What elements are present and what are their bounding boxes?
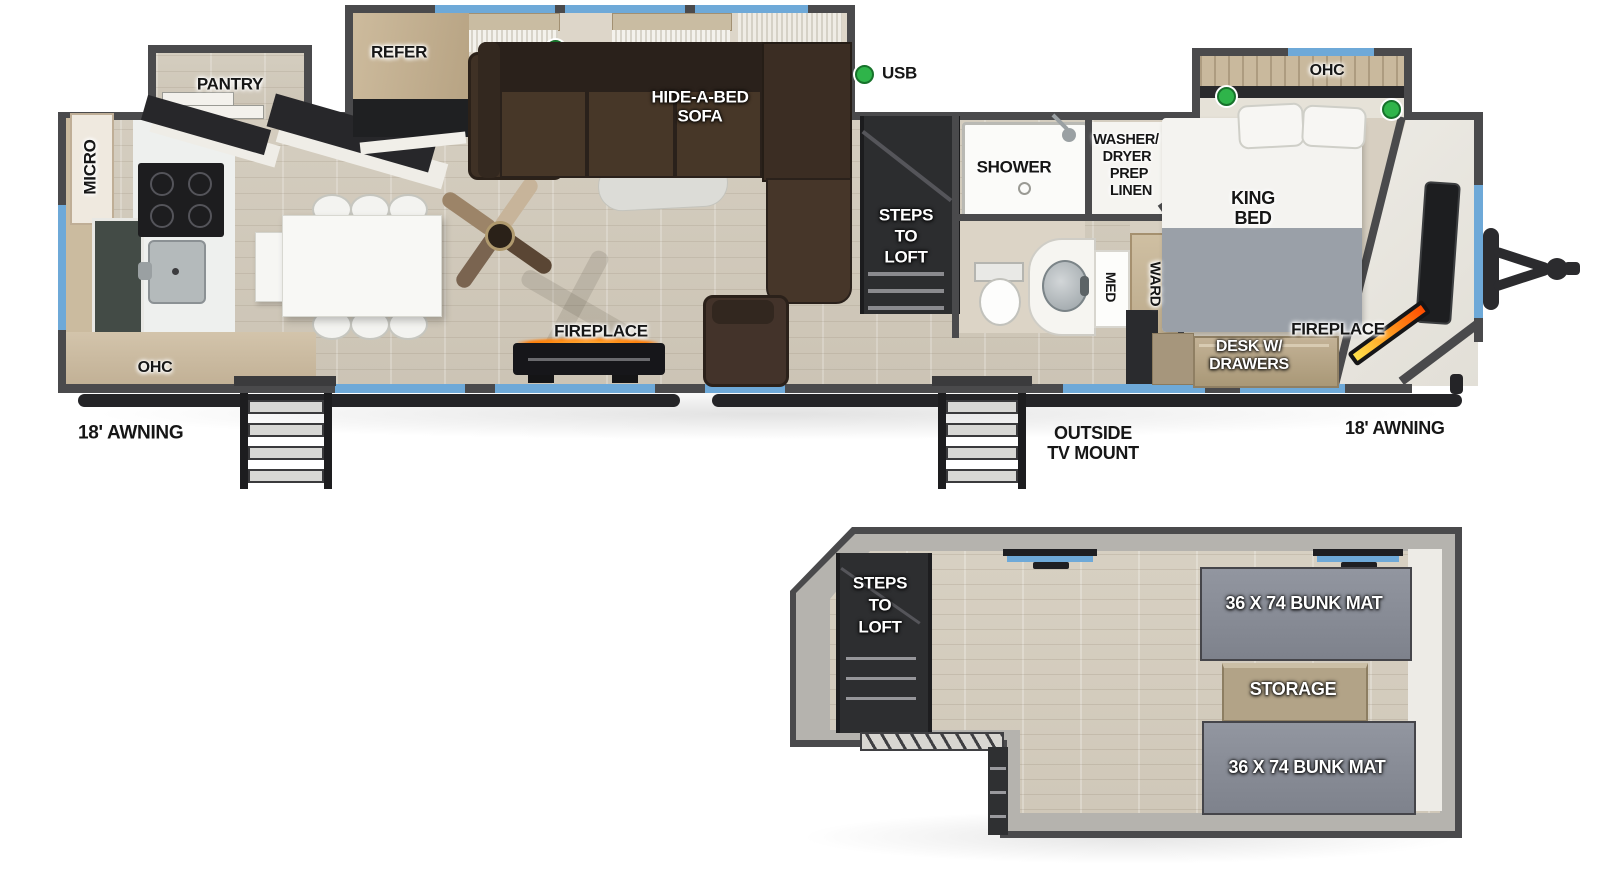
refrigerator-open-front [353, 99, 469, 137]
toilet-bowl [979, 278, 1021, 326]
top-wall-seg4 [1404, 112, 1480, 120]
tv-mount-label-line2: TV MOUNT [1047, 443, 1139, 463]
main-stairs-tread-2 [868, 289, 944, 293]
ceiling-fan-hub [485, 221, 515, 251]
med-label: MED [1102, 272, 1118, 302]
usb-indicator-bed-right [1382, 100, 1401, 119]
entry-steps-1 [240, 393, 332, 489]
loft-railing [860, 732, 1004, 751]
window-cornice-2 [612, 13, 732, 31]
steps1-tread-4 [248, 469, 324, 483]
sink-drain [172, 268, 179, 275]
side-rail-tread-3 [990, 815, 1006, 818]
living-slide-window-1 [435, 5, 555, 13]
bottom-window-1 [335, 384, 465, 393]
bath-wall-under-shower [955, 214, 1088, 221]
fireplace-bedroom-label: FIREPLACE [1291, 319, 1385, 338]
shower-label: SHOWER [977, 157, 1052, 176]
loft-bunk-bottom-label: 36 X 74 BUNK MAT [1229, 757, 1386, 777]
main-stairs-tread-3 [868, 306, 944, 310]
loft-stairs-tread-1 [846, 657, 916, 660]
entry-steps-2 [938, 393, 1026, 489]
awning-bar-left [78, 394, 680, 407]
sofa-chaise [766, 178, 852, 304]
desk-side-cabinet [1152, 333, 1194, 385]
awning-bar-right [712, 394, 1462, 407]
side-rail-tread-2 [990, 791, 1006, 794]
kitchen-island-table [282, 215, 442, 317]
shower-head [1062, 128, 1076, 142]
hide-a-bed-label-line1: HIDE-A-BED [651, 87, 748, 106]
king-bed-label-line1: KING [1231, 188, 1275, 208]
loft-steps-label-line3: LOFT [858, 617, 901, 636]
steps2-tread-2 [946, 423, 1018, 437]
steps1-tread-2 [248, 423, 324, 437]
loft-stairs-tread-3 [846, 697, 916, 700]
living-slide-window-3 [695, 5, 808, 13]
bath-wall-left [952, 116, 959, 338]
main-steps-label-line1: STEPS [879, 205, 933, 224]
washer-label-line4: LINEN [1110, 183, 1152, 199]
stove-burner-1 [150, 172, 174, 196]
tv-mount-label-line1: OUTSIDE [1054, 423, 1132, 443]
bottom-window-2 [495, 384, 655, 393]
loft-window-2-frame [1313, 549, 1403, 556]
loft-window-1-handle [1033, 562, 1069, 569]
pantry-label: PANTRY [197, 74, 263, 93]
washer-closet-wall-bottom [1085, 214, 1171, 221]
loft-steps-label-line1: STEPS [853, 573, 907, 592]
fireplace-console-line [528, 358, 650, 361]
steps1-tread-3 [248, 446, 324, 460]
sink-faucet [138, 262, 152, 280]
hitch-stub [1564, 262, 1580, 275]
sofa-left-arm [478, 42, 500, 178]
micro-label: MICRO [80, 139, 99, 194]
living-slide-wall-left [345, 5, 353, 120]
stove-burner-4 [188, 204, 212, 228]
desk-label-line1: DESK W/ [1216, 338, 1282, 356]
pantry-wall-top [148, 45, 312, 53]
awning-left-label: 18' AWNING [78, 422, 183, 443]
side-rail-tread-1 [990, 767, 1006, 770]
steps1-rail-left [240, 393, 248, 489]
vanity-faucet [1080, 276, 1089, 296]
bed-pillow-2 [1301, 104, 1367, 149]
steps2-rail-left [938, 393, 946, 489]
kitchen-ohc-label: OHC [138, 359, 173, 377]
main-stairs-tread-1 [868, 272, 944, 276]
bedroom-ohc-label: OHC [1310, 62, 1345, 80]
floorplan-canvas: MICRO PANTRY REFER OHC HIDE-A-BED SOFA F… [0, 0, 1600, 882]
loft-stairs-tread-2 [846, 677, 916, 680]
bedroom-slide-window [1288, 48, 1374, 56]
desk-label-line2: DRAWERS [1209, 356, 1289, 374]
right-wall-window [1474, 185, 1483, 318]
ward-label: WARD [1146, 262, 1163, 307]
fireplace-console-foot-2 [612, 375, 638, 383]
loft-plan: STEPS TO LOFT 36 X 74 BUNK MAT STORAGE 3… [790, 525, 1462, 840]
living-slide-window-2 [565, 5, 685, 13]
sofa-corner-seat [762, 42, 852, 182]
steps2-rail-right [1018, 393, 1026, 489]
stove-burner-2 [188, 172, 212, 196]
main-steps-label-line2: TO [895, 226, 918, 245]
hide-a-bed-label-line2: SOFA [677, 106, 722, 125]
loft-window-1-frame [1003, 549, 1097, 556]
usb-label: USB [882, 63, 917, 82]
usb-indicator-bed-left [1217, 87, 1236, 106]
stove [138, 163, 224, 237]
washer-label-line2: DRYER [1103, 149, 1152, 165]
tall-cabinet [92, 218, 144, 342]
washer-closet-wall-left [1085, 116, 1092, 221]
fireplace-console-foot-1 [528, 375, 554, 383]
steps1-rail-right [324, 393, 332, 489]
loft-side-rail [988, 747, 1008, 835]
hitch-crossbar [1483, 228, 1499, 310]
recliner-living-back [712, 300, 774, 324]
steps2-tread-1 [946, 400, 1018, 414]
washer-label-line1: WASHER/ [1093, 132, 1159, 148]
entry-threshold-1 [234, 376, 336, 386]
loft-bunk-top [1200, 567, 1412, 661]
refer-label: REFER [371, 42, 427, 61]
washer-label-line3: PREP [1110, 166, 1148, 182]
bedroom-slide-wall-left [1192, 48, 1200, 120]
loft-steps-label-line2: TO [869, 595, 892, 614]
sofa-cushion-1 [500, 90, 587, 178]
awning-right-label: 18' AWNING [1345, 418, 1445, 438]
steps2-tread-3 [946, 446, 1018, 460]
steps2-tread-4 [946, 469, 1018, 483]
loft-bunk-top-label: 36 X 74 BUNK MAT [1226, 593, 1383, 613]
stove-burner-3 [150, 204, 174, 228]
bed-pillow-1 [1237, 102, 1305, 149]
main-steps-label-line3: LOFT [884, 247, 927, 266]
entry-threshold-2 [932, 376, 1032, 386]
awning-end-nub [1450, 374, 1463, 394]
bedroom-ohc-cabinet [1200, 56, 1404, 86]
left-wall-window [58, 205, 66, 330]
steps1-tread-1 [248, 400, 324, 414]
usb-indicator-note [855, 65, 874, 84]
shower-drain [1018, 182, 1031, 195]
hitch-arm-2 [1492, 264, 1550, 291]
bottom-window-4 [1063, 384, 1205, 393]
bedroom-slide-wall-right [1404, 48, 1412, 120]
king-bed-blanket [1162, 228, 1362, 332]
fireplace-living-label: FIREPLACE [554, 321, 648, 340]
loft-storage-label: STORAGE [1250, 679, 1337, 699]
king-bed-label-line2: BED [1234, 208, 1271, 228]
